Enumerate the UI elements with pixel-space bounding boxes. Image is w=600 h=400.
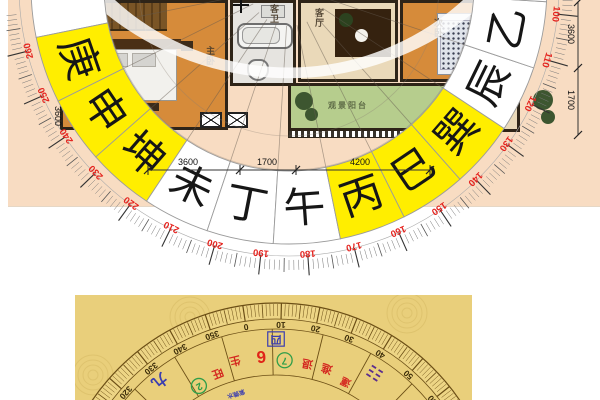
svg-text:160: 160: [389, 223, 408, 239]
svg-text:退: 退: [301, 356, 314, 372]
label-second-bedroom: 次卧: [432, 18, 445, 38]
svg-text:進: 進: [318, 360, 334, 377]
room-balcony: [288, 83, 488, 131]
label-balcony: 观景阳台: [328, 100, 368, 111]
bed-headboard: [95, 39, 181, 49]
master-bed: [99, 49, 177, 101]
plant: [541, 110, 555, 124]
threshold-symbol: [226, 112, 248, 128]
toilet: [247, 59, 269, 81]
label-guest-bathroom: 客卫: [268, 4, 281, 24]
svg-text:旺: 旺: [210, 365, 225, 381]
balcony-table: [487, 116, 503, 132]
pillow: [132, 53, 156, 67]
svg-text:20: 20: [310, 323, 322, 335]
nightstand: [181, 41, 193, 51]
svg-text:170: 170: [345, 239, 363, 254]
room-master-bedroom: [60, 0, 228, 130]
svg-text:四: 四: [271, 333, 282, 346]
landscape-rock-small: [429, 116, 442, 124]
room-second-bedroom: [400, 0, 520, 82]
floor-plan: [60, 0, 520, 140]
threshold-symbol: [200, 112, 222, 128]
svg-text:6: 6: [256, 347, 267, 367]
table-plant: [339, 13, 353, 27]
luopan-photo-panel: 3003103203303403500102030405060九2旺生紫微水67…: [75, 295, 472, 400]
label-living-room: 客厅: [313, 8, 326, 28]
svg-text:0: 0: [243, 322, 249, 333]
room-guest-bathroom: [230, 0, 296, 86]
svg-text:10: 10: [276, 320, 286, 330]
pillow: [104, 53, 128, 67]
svg-text:7: 7: [281, 355, 288, 366]
svg-text:180: 180: [299, 247, 316, 259]
svg-text:紫微水: 紫微水: [225, 388, 246, 400]
bed-bench: [121, 103, 159, 111]
svg-text:210: 210: [162, 218, 181, 235]
fengshui-analysis-image: { "panels": { "top_bg": "#f8dcc2", "bott…: [0, 0, 600, 400]
label-master-bedroom: 主卧: [204, 46, 217, 66]
luopan-compass: 3003103203303403500102030405060九2旺生紫微水67…: [75, 295, 472, 400]
svg-text:190: 190: [253, 246, 270, 259]
plate: [355, 29, 368, 42]
bathtub-inner: [242, 27, 280, 44]
second-bed: [437, 13, 503, 75]
bed-headboard: [490, 18, 500, 72]
svg-text:200: 200: [206, 236, 224, 251]
wardrobe: [65, 3, 167, 31]
plant: [533, 90, 553, 110]
nightstand: [83, 41, 95, 51]
landscape-rock: [443, 100, 475, 124]
patterned-blanket: [440, 20, 484, 70]
plant: [305, 108, 318, 121]
dining-table: [335, 9, 391, 57]
balcony-railing: [288, 130, 488, 138]
appliance: [85, 99, 105, 117]
svg-text:運: 運: [339, 374, 353, 389]
